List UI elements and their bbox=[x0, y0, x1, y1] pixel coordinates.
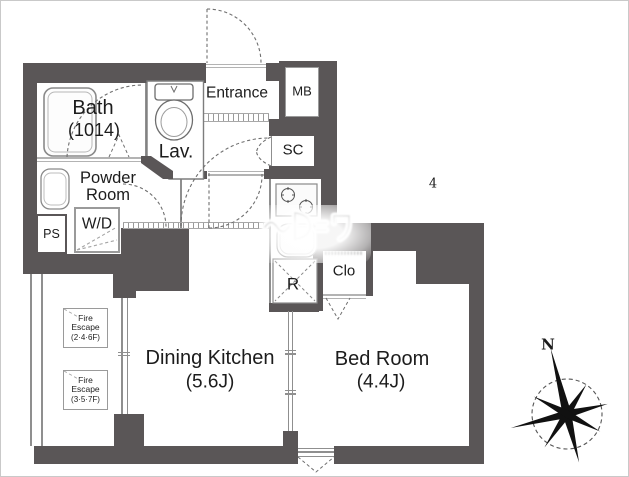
powder-sink-icon bbox=[41, 169, 69, 209]
line-hall-threshold-1 bbox=[208, 171, 264, 172]
line-bottom-window-3 bbox=[298, 456, 334, 457]
wall-lav-bottom bbox=[167, 171, 207, 179]
wall-pillar-balcony-top bbox=[113, 271, 136, 298]
tick-balcony-window-a bbox=[118, 352, 130, 353]
washer-dryer-label: W/D bbox=[82, 215, 112, 232]
powder-room-label-line1: Powder bbox=[80, 169, 136, 187]
line-balcony-rail-outer bbox=[30, 274, 32, 446]
wall-bottom-right bbox=[334, 446, 484, 464]
line-bottom-window-1 bbox=[298, 448, 334, 449]
closet-label: Clo bbox=[333, 264, 356, 281]
pipe-space-label: PS bbox=[43, 227, 60, 241]
tick-partition-b2 bbox=[285, 393, 296, 394]
tick-partition-a1 bbox=[285, 350, 296, 351]
bed-room-size-label: (4.4J) bbox=[357, 371, 406, 392]
wall-mb-sc-chunk bbox=[269, 119, 337, 136]
line-bottom-window-2 bbox=[298, 451, 334, 452]
shoe-closet-label: SC bbox=[283, 143, 304, 160]
line-entrance-sill-1 bbox=[206, 64, 266, 65]
page-number: 4 bbox=[429, 178, 437, 193]
line-balcony-rail-inner bbox=[41, 274, 43, 446]
fire-escape-lower-box: Fire Escape (3·5·7F) bbox=[63, 370, 108, 410]
powder-room-label-line2: Room bbox=[86, 186, 130, 204]
line-hall-threshold-2 bbox=[208, 174, 264, 175]
step-genkan bbox=[198, 113, 269, 122]
line-closet-sill-2 bbox=[323, 298, 366, 299]
tick-partition-b1 bbox=[285, 390, 296, 391]
lav-label: Lav. bbox=[159, 141, 194, 162]
wall-jamb-entrance-right bbox=[266, 63, 279, 81]
watermark-blob bbox=[259, 205, 371, 263]
tick-balcony-window-b bbox=[118, 355, 130, 356]
line-bath-door-sill-1 bbox=[37, 157, 145, 159]
lav-room-outline bbox=[141, 81, 204, 179]
wall-right-of-sc bbox=[314, 136, 337, 166]
line-entrance-sill-2 bbox=[206, 67, 266, 68]
wall-left bbox=[23, 63, 37, 274]
fire-escape-upper-line3: (2·4·6F) bbox=[71, 333, 100, 343]
step-dk bbox=[123, 222, 269, 229]
wall-top-band bbox=[23, 63, 206, 83]
line-bath-door-sill-2 bbox=[37, 161, 145, 163]
toilet-icon bbox=[155, 84, 193, 140]
wall-pillar-partition-bottom bbox=[283, 431, 298, 446]
dining-kitchen-size-label: (5.6J) bbox=[186, 371, 235, 392]
line-closet-sill-1 bbox=[323, 294, 366, 296]
dining-kitchen-label: Dining Kitchen bbox=[146, 347, 275, 369]
wall-bottom-left bbox=[34, 446, 298, 464]
compass-north-label: N bbox=[541, 337, 555, 354]
bath-label: Bath bbox=[72, 97, 113, 119]
fire-escape-lower-line2: Escape bbox=[71, 385, 99, 395]
line-sc-front bbox=[271, 136, 272, 166]
compass-rose bbox=[494, 338, 620, 477]
wall-kitchen-counter-end bbox=[269, 303, 319, 312]
entrance-label: Entrance bbox=[206, 84, 268, 101]
fire-escape-upper-line2: Escape bbox=[71, 323, 99, 333]
bed-room-label: Bed Room bbox=[335, 348, 430, 370]
refrigerator-label: R bbox=[287, 274, 299, 293]
wall-sc-kitchen-chunk bbox=[269, 166, 337, 179]
wall-right-bedroom bbox=[469, 223, 484, 464]
floor-plan: Fire Escape (2·4·6F) Fire Escape (3·5·7F… bbox=[0, 0, 629, 477]
wall-hall-jamb bbox=[264, 169, 274, 179]
fire-escape-upper-box: Fire Escape (2·4·6F) bbox=[63, 308, 108, 348]
line-partition-1 bbox=[288, 311, 289, 431]
line-powder-hall-divider bbox=[180, 173, 182, 228]
fire-escape-lower-line3: (3·5·7F) bbox=[71, 395, 100, 405]
wall-pillar-balcony-bottom bbox=[114, 414, 144, 449]
tick-partition-a2 bbox=[285, 353, 296, 354]
meter-box-label: MB bbox=[292, 85, 312, 100]
line-bath-lav-divider bbox=[145, 83, 147, 157]
bath-size-label: (1014) bbox=[68, 120, 120, 140]
line-partition-2 bbox=[292, 311, 293, 431]
wall-bedroom-notch-block bbox=[416, 223, 469, 284]
